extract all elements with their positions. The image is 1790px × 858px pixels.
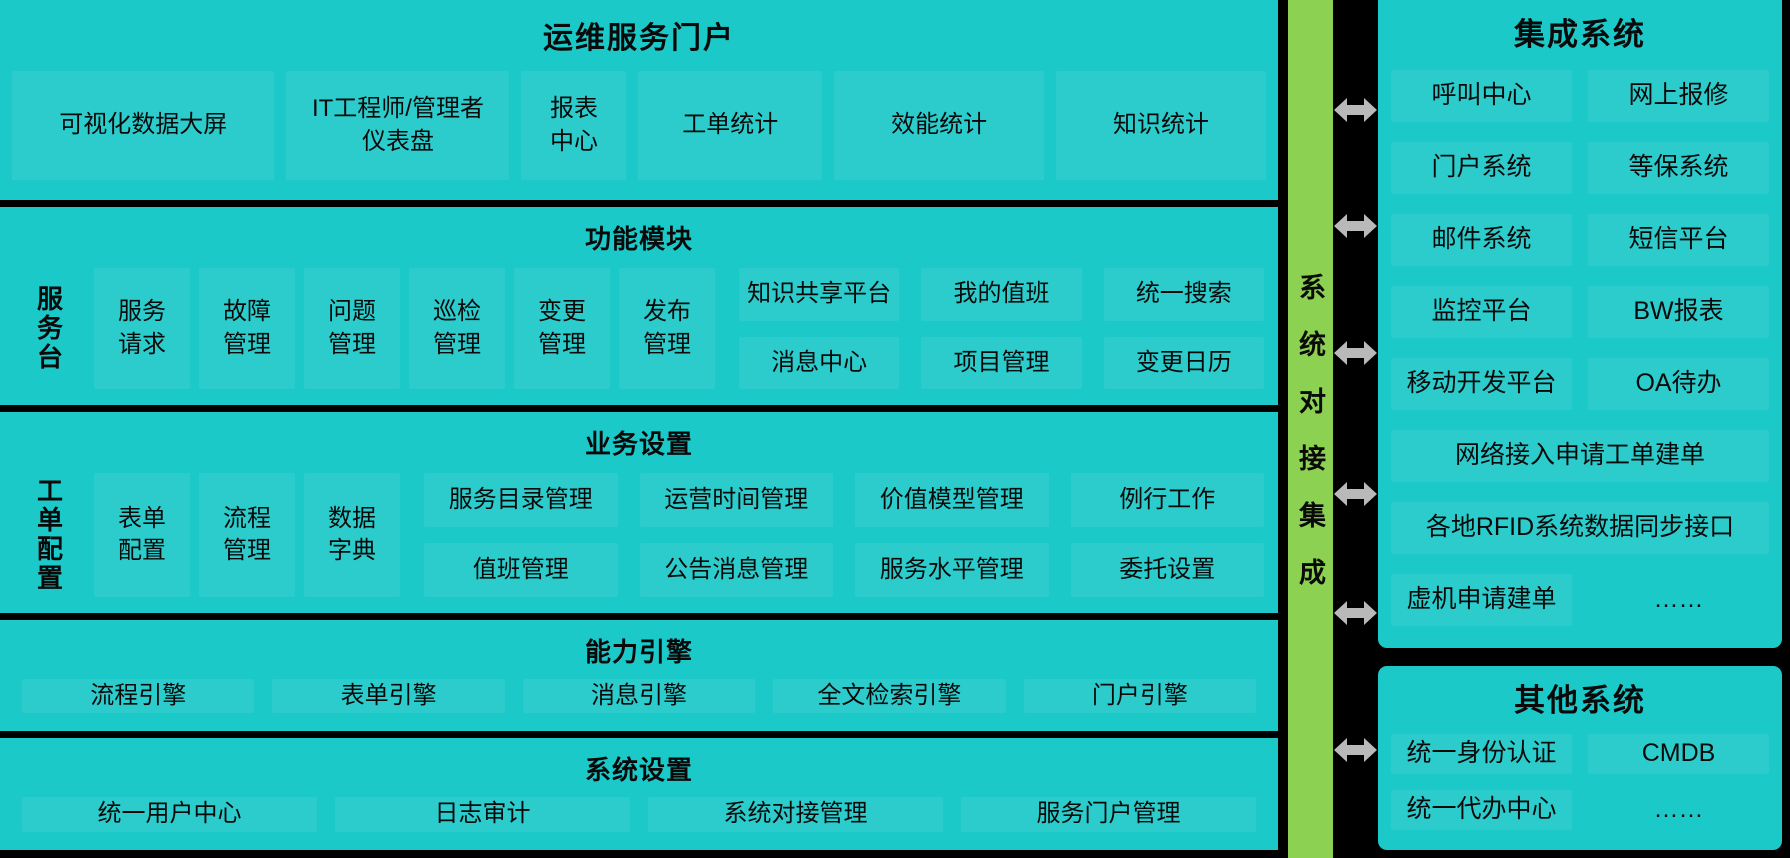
- engine-row: 流程引擎 表单引擎 消息引擎 全文检索引擎 门户引擎: [0, 669, 1278, 731]
- business-module-chips: 表单 配置 流程 管理 数据 字典: [94, 473, 400, 597]
- pair-row: 邮件系统 短信平台: [1391, 204, 1769, 276]
- grid-item: 知识共享平台: [739, 268, 899, 321]
- integration-item: BW报表: [1588, 286, 1769, 338]
- module-item: 流程 管理: [199, 473, 295, 597]
- dashboard-cell: 工单统计: [638, 71, 822, 180]
- engine-item: 流程引擎: [22, 679, 254, 713]
- integration-bar: 系统对接集成: [1288, 0, 1333, 858]
- system-settings-header: 系统设置: [0, 738, 1278, 787]
- divider: [0, 731, 1278, 738]
- dashboard-item: 知识统计: [1056, 71, 1266, 180]
- divider: [0, 613, 1278, 620]
- engine-item: 门户引擎: [1024, 679, 1256, 713]
- dashboard-row: 可视化数据大屏 IT工程师/管理者 仪表盘 报表 中心 工单统计 效能统计 知识…: [0, 57, 1278, 200]
- pair-row: 门户系统 等保系统: [1391, 132, 1769, 204]
- integration-bar-label: 系统对接集成: [1291, 273, 1330, 615]
- other-system-item-ellipsis: ……: [1588, 790, 1769, 830]
- ops-portal-panel: 运维服务门户 可视化数据大屏 IT工程师/管理者 仪表盘 报表 中心 工单统计 …: [0, 0, 1278, 858]
- full-row: 网络接入申请工单建单: [1391, 420, 1769, 492]
- integration-item: 等保系统: [1588, 142, 1769, 194]
- service-desk-label: 服务台: [14, 268, 84, 389]
- grid-item: 委托设置: [1071, 543, 1265, 597]
- other-system-item: 统一身份认证: [1391, 734, 1572, 774]
- system-item: 服务门户管理: [961, 797, 1256, 832]
- function-modules-row: 服务台 服务 请求 故障 管理 问题 管理 巡检 管理 变更 管理 发布 管理 …: [0, 256, 1278, 405]
- function-module-chips: 服务 请求 故障 管理 问题 管理 巡检 管理 变更 管理 发布 管理: [94, 268, 715, 389]
- pair-row: 呼叫中心 网上报修: [1391, 60, 1769, 132]
- integration-item: 虚机申请建单: [1391, 574, 1572, 626]
- other-system-item: 统一代办中心: [1391, 790, 1572, 830]
- double-arrow-icon: [1333, 479, 1378, 509]
- integration-item: 监控平台: [1391, 286, 1572, 338]
- double-arrow-icon: [1333, 598, 1378, 628]
- external-systems-column: 集成系统 呼叫中心 网上报修 门户系统 等保系统 邮件系统 短信平台 监控平台 …: [1378, 0, 1790, 858]
- grid-item: 服务目录管理: [424, 473, 618, 527]
- divider: [0, 405, 1278, 412]
- pair-row: 统一身份认证 CMDB: [1391, 726, 1769, 782]
- module-item: 问题 管理: [304, 268, 400, 389]
- full-row: 各地RFID系统数据同步接口: [1391, 492, 1769, 564]
- module-item: 巡检 管理: [409, 268, 505, 389]
- section-capability-engines: 能力引擎 流程引擎 表单引擎 消息引擎 全文检索引擎 门户引擎: [0, 620, 1278, 731]
- double-arrow-icon: [1333, 735, 1378, 765]
- grid-item: 消息中心: [739, 337, 899, 390]
- grid-item: 值班管理: [424, 543, 618, 597]
- capability-engines-header: 能力引擎: [0, 620, 1278, 669]
- other-system-item: CMDB: [1588, 734, 1769, 774]
- module-item: 故障 管理: [199, 268, 295, 389]
- section-dashboard: 运维服务门户 可视化数据大屏 IT工程师/管理者 仪表盘 报表 中心 工单统计 …: [0, 0, 1278, 200]
- module-item: 发布 管理: [619, 268, 715, 389]
- ticket-config-label: 工单配置: [14, 473, 84, 597]
- function-modules-header: 功能模块: [0, 207, 1278, 256]
- integrated-systems-title: 集成系统: [1378, 0, 1782, 54]
- engine-item: 消息引擎: [523, 679, 755, 713]
- dashboard-cell: 效能统计: [834, 71, 1044, 180]
- bottom-border: [0, 850, 1278, 858]
- module-item: 变更 管理: [514, 268, 610, 389]
- dashboard-cell: 可视化数据大屏: [12, 71, 274, 180]
- function-sub-grid: 知识共享平台 我的值班 统一搜索 消息中心 项目管理 变更日历: [739, 268, 1264, 389]
- dashboard-item: 可视化数据大屏: [12, 71, 274, 180]
- grid-item: 我的值班: [921, 268, 1081, 321]
- pair-row: 虚机申请建单 ……: [1391, 564, 1769, 636]
- divider: [0, 200, 1278, 207]
- grid-item: 公告消息管理: [640, 543, 834, 597]
- section-business-settings: 业务设置 工单配置 表单 配置 流程 管理 数据 字典 服务目录管理 运营时间管…: [0, 412, 1278, 613]
- double-arrow-icon: [1333, 95, 1378, 125]
- dashboard-cell: IT工程师/管理者 仪表盘: [286, 71, 509, 180]
- integration-item: 网络接入申请工单建单: [1391, 430, 1769, 482]
- integration-item-ellipsis: ……: [1588, 574, 1769, 626]
- pair-row: 监控平台 BW报表: [1391, 276, 1769, 348]
- module-item: 表单 配置: [94, 473, 190, 597]
- engine-item: 全文检索引擎: [773, 679, 1005, 713]
- integration-item: 各地RFID系统数据同步接口: [1391, 502, 1769, 554]
- grid-item: 服务水平管理: [855, 543, 1049, 597]
- system-item: 统一用户中心: [22, 797, 317, 832]
- business-settings-header: 业务设置: [0, 412, 1278, 461]
- double-arrow-icon: [1333, 211, 1378, 241]
- integration-item: 移动开发平台: [1391, 358, 1572, 410]
- section-function-modules: 功能模块 服务台 服务 请求 故障 管理 问题 管理 巡检 管理 变更 管理 发…: [0, 207, 1278, 405]
- integration-item: 邮件系统: [1391, 214, 1572, 266]
- business-settings-row: 工单配置 表单 配置 流程 管理 数据 字典 服务目录管理 运营时间管理 价值模…: [0, 461, 1278, 613]
- business-sub-grid: 服务目录管理 运营时间管理 价值模型管理 例行工作 值班管理 公告消息管理 服务…: [424, 473, 1264, 597]
- dashboard-item: IT工程师/管理者 仪表盘: [286, 71, 509, 180]
- section-system-settings: 系统设置 统一用户中心 日志审计 系统对接管理 服务门户管理: [0, 738, 1278, 850]
- other-systems-panel: 其他系统 统一身份认证 CMDB 统一代办中心 ……: [1378, 666, 1782, 850]
- dashboard-item: 工单统计: [638, 71, 822, 180]
- module-item: 数据 字典: [304, 473, 400, 597]
- other-systems-body: 统一身份认证 CMDB 统一代办中心 ……: [1378, 720, 1782, 850]
- grid-item: 统一搜索: [1104, 268, 1264, 321]
- dashboard-item: 报表 中心: [521, 71, 626, 180]
- system-item: 系统对接管理: [648, 797, 943, 832]
- grid-item: 运营时间管理: [640, 473, 834, 527]
- grid-item: 项目管理: [921, 337, 1081, 390]
- other-systems-title: 其他系统: [1378, 666, 1782, 720]
- grid-item: 例行工作: [1071, 473, 1265, 527]
- integrated-systems-body: 呼叫中心 网上报修 门户系统 等保系统 邮件系统 短信平台 监控平台 BW报表 …: [1378, 54, 1782, 648]
- ops-portal-title: 运维服务门户: [0, 0, 1278, 57]
- module-item: 服务 请求: [94, 268, 190, 389]
- dashboard-cell: 知识统计: [1056, 71, 1266, 180]
- integration-item: 门户系统: [1391, 142, 1572, 194]
- integration-connector: 系统对接集成: [1278, 0, 1378, 858]
- integration-item: OA待办: [1588, 358, 1769, 410]
- grid-item: 变更日历: [1104, 337, 1264, 390]
- architecture-diagram: 运维服务门户 可视化数据大屏 IT工程师/管理者 仪表盘 报表 中心 工单统计 …: [0, 0, 1790, 858]
- pair-row: 统一代办中心 ……: [1391, 782, 1769, 838]
- integration-item: 短信平台: [1588, 214, 1769, 266]
- system-item: 日志审计: [335, 797, 630, 832]
- dashboard-cell: 报表 中心: [521, 71, 626, 180]
- double-arrow-icon: [1333, 338, 1378, 368]
- system-row: 统一用户中心 日志审计 系统对接管理 服务门户管理: [0, 787, 1278, 850]
- integration-item: 呼叫中心: [1391, 70, 1572, 122]
- integrated-systems-panel: 集成系统 呼叫中心 网上报修 门户系统 等保系统 邮件系统 短信平台 监控平台 …: [1378, 0, 1782, 648]
- grid-item: 价值模型管理: [855, 473, 1049, 527]
- integration-item: 网上报修: [1588, 70, 1769, 122]
- pair-row: 移动开发平台 OA待办: [1391, 348, 1769, 420]
- dashboard-item: 效能统计: [834, 71, 1044, 180]
- engine-item: 表单引擎: [272, 679, 504, 713]
